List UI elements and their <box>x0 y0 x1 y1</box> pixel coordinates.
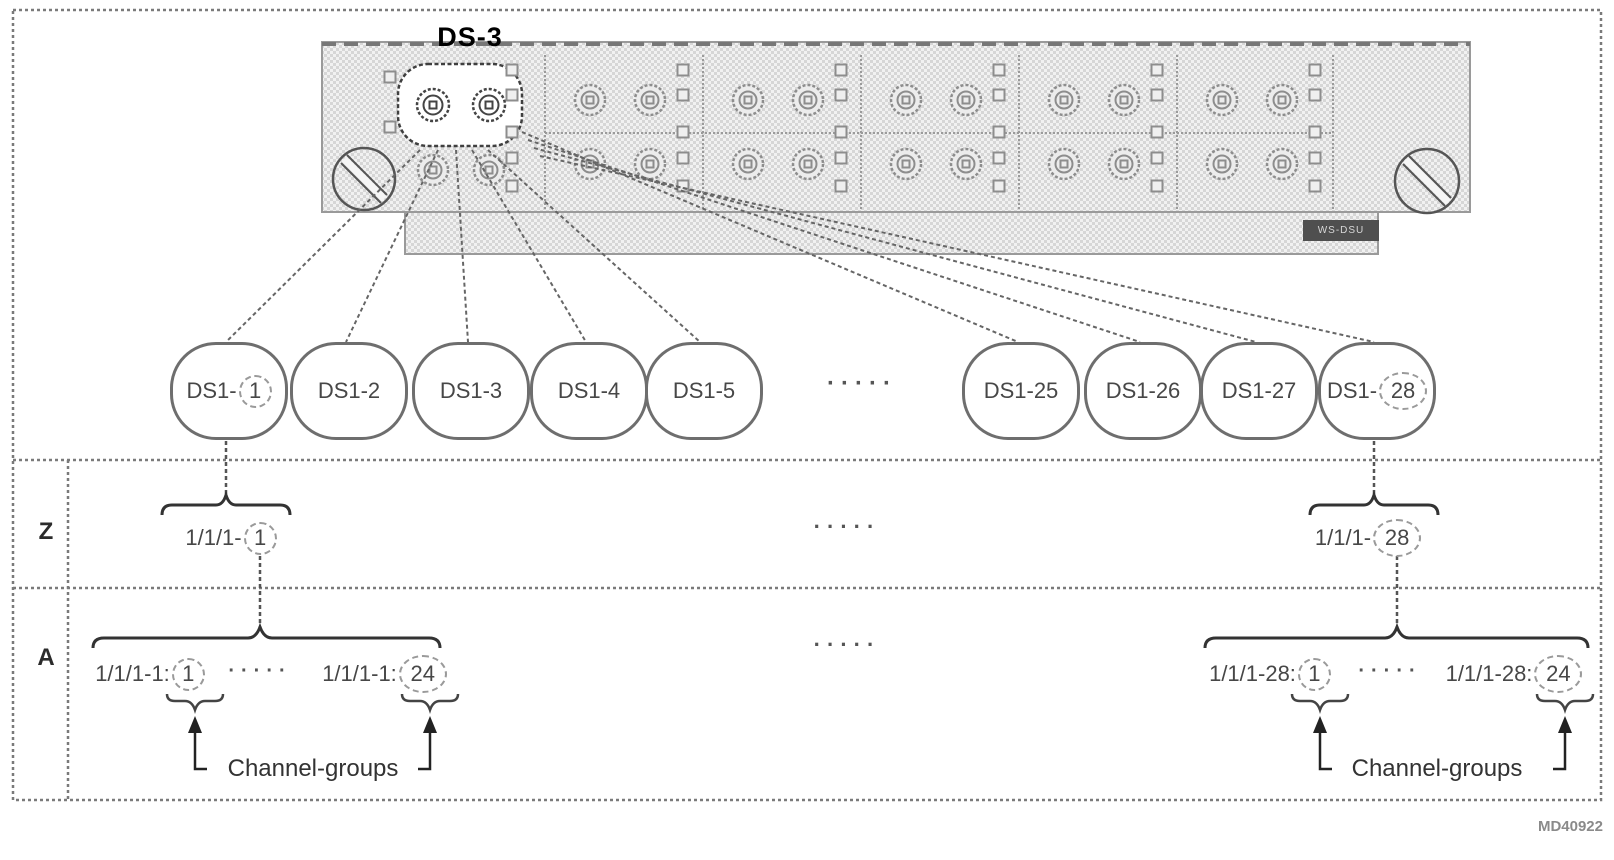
ds1-label: DS1-27 <box>1222 378 1297 404</box>
circled-number: 1 <box>172 658 205 691</box>
ds1-label: DS1- <box>186 378 236 404</box>
card-model-label: WS-DSU <box>1303 220 1379 241</box>
ds3-card <box>322 42 1470 254</box>
circled-number: 28 <box>1373 519 1421 557</box>
ds1-ellipsis: ····· <box>810 370 914 398</box>
interface-label: 1/1/1-1: <box>95 661 170 687</box>
ds1-label: DS1- <box>1327 378 1377 404</box>
interface-label: 1/1/1-28: <box>1209 661 1296 687</box>
ds1-channel-oval: DS1-3 <box>412 342 530 440</box>
ds1-channel-oval: DS1-5 <box>645 342 763 440</box>
circled-number: 1 <box>1298 658 1331 691</box>
circled-number: 1 <box>239 375 272 408</box>
ds1-label: DS1-26 <box>1106 378 1181 404</box>
ds1-channel-oval: DS1-25 <box>962 342 1080 440</box>
interface-label: 1/1/1- <box>1315 525 1371 551</box>
a-left-brace <box>93 627 440 648</box>
channel-group-underbraces <box>167 694 1593 710</box>
ds1-channel-oval: DS1-2 <box>290 342 408 440</box>
bnc-connector <box>473 89 505 121</box>
ds1-label: DS1-4 <box>558 378 620 404</box>
a-right-brace <box>1205 627 1588 648</box>
ds3-port-highlight <box>398 64 522 146</box>
mounting-screw-right <box>1395 149 1459 213</box>
z-row-label: Z <box>24 518 68 546</box>
figure-id: MD40922 <box>1455 818 1603 835</box>
a-right-last-interface: 1/1/1-28:24 <box>1430 652 1598 696</box>
ds3-port-label: DS-3 <box>420 22 520 53</box>
circled-number: 24 <box>1534 655 1582 693</box>
circled-number: 28 <box>1379 372 1427 410</box>
ds1-label: DS1-3 <box>440 378 502 404</box>
z-right-brace <box>1310 495 1438 515</box>
circled-number: 24 <box>399 655 447 693</box>
interface-label: 1/1/1-1: <box>322 661 397 687</box>
a-left-ellipsis: ····· <box>218 660 302 683</box>
z-right-interface: 1/1/1-28 <box>1304 516 1432 560</box>
a-right-ellipsis: ····· <box>1348 660 1432 683</box>
channel-groups-caption-left: Channel-groups <box>203 755 423 783</box>
ds1-label: DS1-2 <box>318 378 380 404</box>
channel-groups-caption-right: Channel-groups <box>1327 755 1547 783</box>
z-left-brace <box>162 495 290 515</box>
a-right-first-interface: 1/1/1-28:1 <box>1186 652 1354 696</box>
diagram-canvas: DS-3 WS-DSU DS1-1 DS1-2 DS1-3 DS1-4 DS1-… <box>0 0 1614 860</box>
ds1-label: DS1-5 <box>673 378 735 404</box>
a-left-last-interface: 1/1/1-1:24 <box>302 652 467 696</box>
a-left-first-interface: 1/1/1-1:1 <box>70 652 230 696</box>
bnc-connector <box>417 89 449 121</box>
ds1-channel-oval: DS1-4 <box>530 342 648 440</box>
a-row-label: A <box>24 644 68 672</box>
interface-label: 1/1/1-28: <box>1446 661 1533 687</box>
z-ellipsis: ····· <box>805 514 889 540</box>
ds1-channel-oval: DS1-1 <box>170 342 288 440</box>
ds1-channel-oval: DS1-26 <box>1084 342 1202 440</box>
card-lower-panel <box>405 212 1378 254</box>
a-mid-ellipsis: ····· <box>805 632 889 658</box>
z-left-interface: 1/1/1-1 <box>168 516 294 560</box>
ds1-label: DS1-25 <box>984 378 1059 404</box>
ds1-channel-oval: DS1-28 <box>1318 342 1436 440</box>
interface-label: 1/1/1- <box>185 525 241 551</box>
ds1-channel-oval: DS1-27 <box>1200 342 1318 440</box>
circled-number: 1 <box>244 522 277 555</box>
mounting-screw-left <box>333 148 395 210</box>
